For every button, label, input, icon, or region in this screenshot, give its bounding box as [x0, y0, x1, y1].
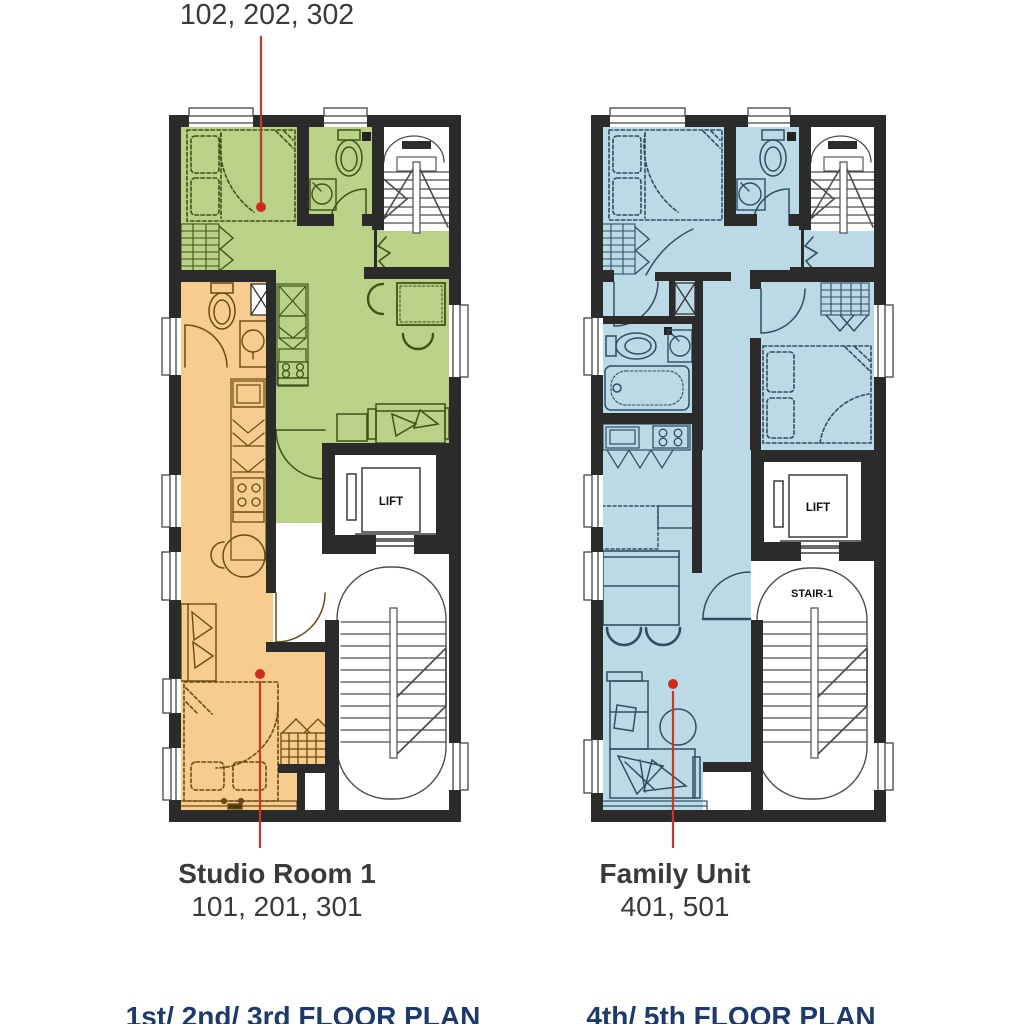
svg-text:Family Unit: Family Unit — [600, 858, 751, 889]
svg-text:4th/ 5th FLOOR PLAN: 4th/ 5th FLOOR PLAN — [586, 1001, 875, 1024]
svg-text:Studio Room 1: Studio Room 1 — [178, 858, 376, 889]
svg-text:LIFT: LIFT — [806, 502, 830, 514]
svg-text:1st/ 2nd/ 3rd FLOOR PLAN: 1st/ 2nd/ 3rd FLOOR PLAN — [126, 1001, 481, 1024]
svg-text:STAIR-1: STAIR-1 — [791, 588, 833, 600]
svg-text:LIFT: LIFT — [379, 496, 403, 508]
svg-text:102, 202, 302: 102, 202, 302 — [180, 0, 354, 31]
svg-text:401, 501: 401, 501 — [621, 891, 730, 922]
svg-text:101, 201, 301: 101, 201, 301 — [191, 891, 362, 922]
